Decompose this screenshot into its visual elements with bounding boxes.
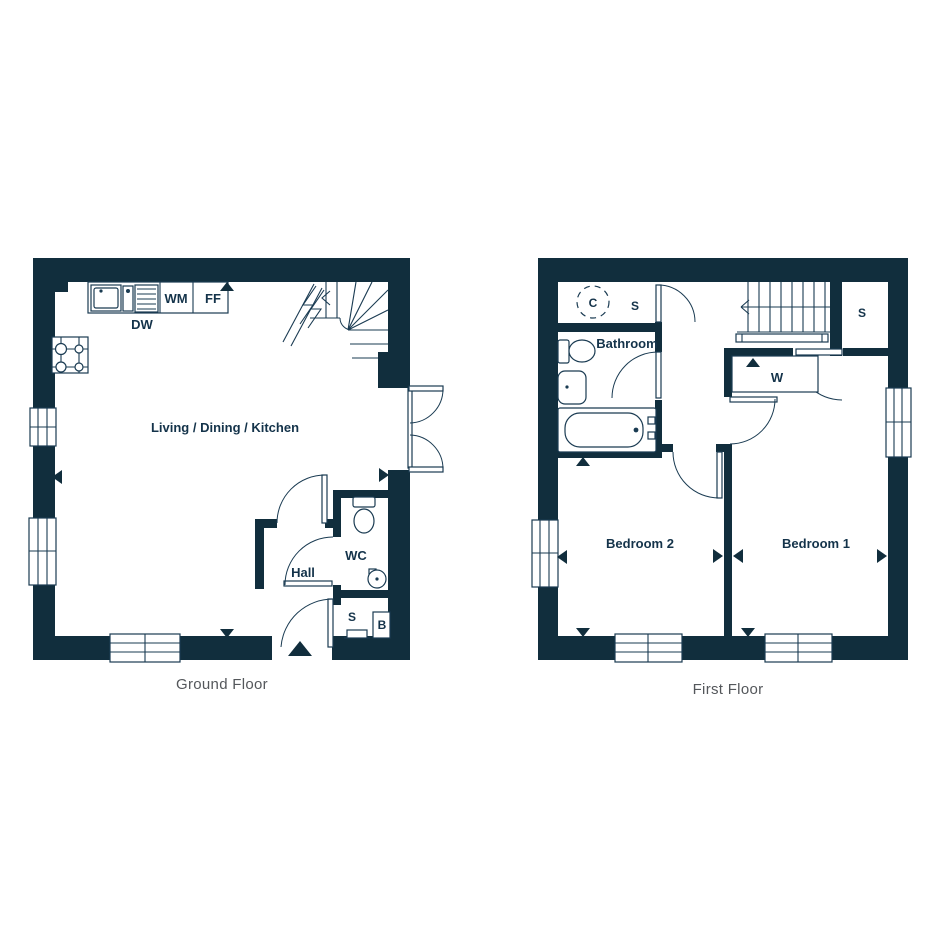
window [110,634,180,662]
marker-down-icon [741,628,755,637]
bedroom-store-label: S [858,306,866,320]
gf-stairs [283,282,388,358]
ground-floor-title: Ground Floor [176,676,268,693]
window [615,634,682,662]
window [30,408,56,446]
gf-door-living-hall [277,475,327,523]
first-floor-plan: C S S Bathroom W Bedroom 2 Bedroom 1 Fir… [528,252,915,700]
wardrobe-label: W [771,370,784,385]
wc-label: WC [345,548,367,563]
boiler-label: B [378,618,387,632]
hall-label: Hall [291,565,315,580]
bathroom-label: Bathroom [596,336,657,351]
store-label: S [348,610,356,624]
living-dining-kitchen-label: Living / Dining / Kitchen [151,420,299,435]
gf-front-door [281,599,333,656]
fridge-freezer-label: FF [205,291,221,306]
window [29,518,56,585]
ff-door-bedroom-2 [673,452,722,498]
marker-right-icon [877,549,887,563]
stair-rail [736,334,828,342]
toilet-icon [558,340,595,363]
bath-icon [558,408,656,452]
shelf-icon [344,630,370,638]
ff-door-bedroom-1 [730,397,777,444]
ff-door-bathroom [612,352,661,398]
marker-right-icon [379,468,389,482]
gf-markers [52,282,389,638]
marker-right-icon [713,549,723,563]
window [765,634,832,662]
cylinder-label: C [589,296,598,310]
landing-store-label: S [631,299,639,313]
drainer-icon [135,285,158,312]
window [886,388,911,457]
bedroom-1-label: Bedroom 1 [782,536,850,551]
basin-icon [558,371,586,404]
first-floor-title: First Floor [693,681,764,698]
ground-floor-plan: Living / Dining / Kitchen Hall WC S B DW… [28,252,460,700]
bedroom-2-label: Bedroom 2 [606,536,674,551]
toilet-icon [353,497,375,533]
entrance-arrow-icon [288,641,312,656]
basin-icon [368,569,386,588]
sink-icon [91,285,133,311]
gf-french-doors [408,386,443,472]
floorplan-page: Living / Dining / Kitchen Hall WC S B DW… [0,0,945,945]
marker-down-icon [576,628,590,637]
washing-machine-label: WM [164,291,187,306]
ff-bathroom-fixtures [558,340,656,452]
marker-left-icon [733,549,743,563]
window [532,520,558,587]
ff-stairs [736,282,830,342]
marker-up-icon [576,457,590,466]
dishwasher-label: DW [131,317,153,332]
ff-door-cylinder-store [656,285,695,322]
hob-icon [52,337,88,373]
